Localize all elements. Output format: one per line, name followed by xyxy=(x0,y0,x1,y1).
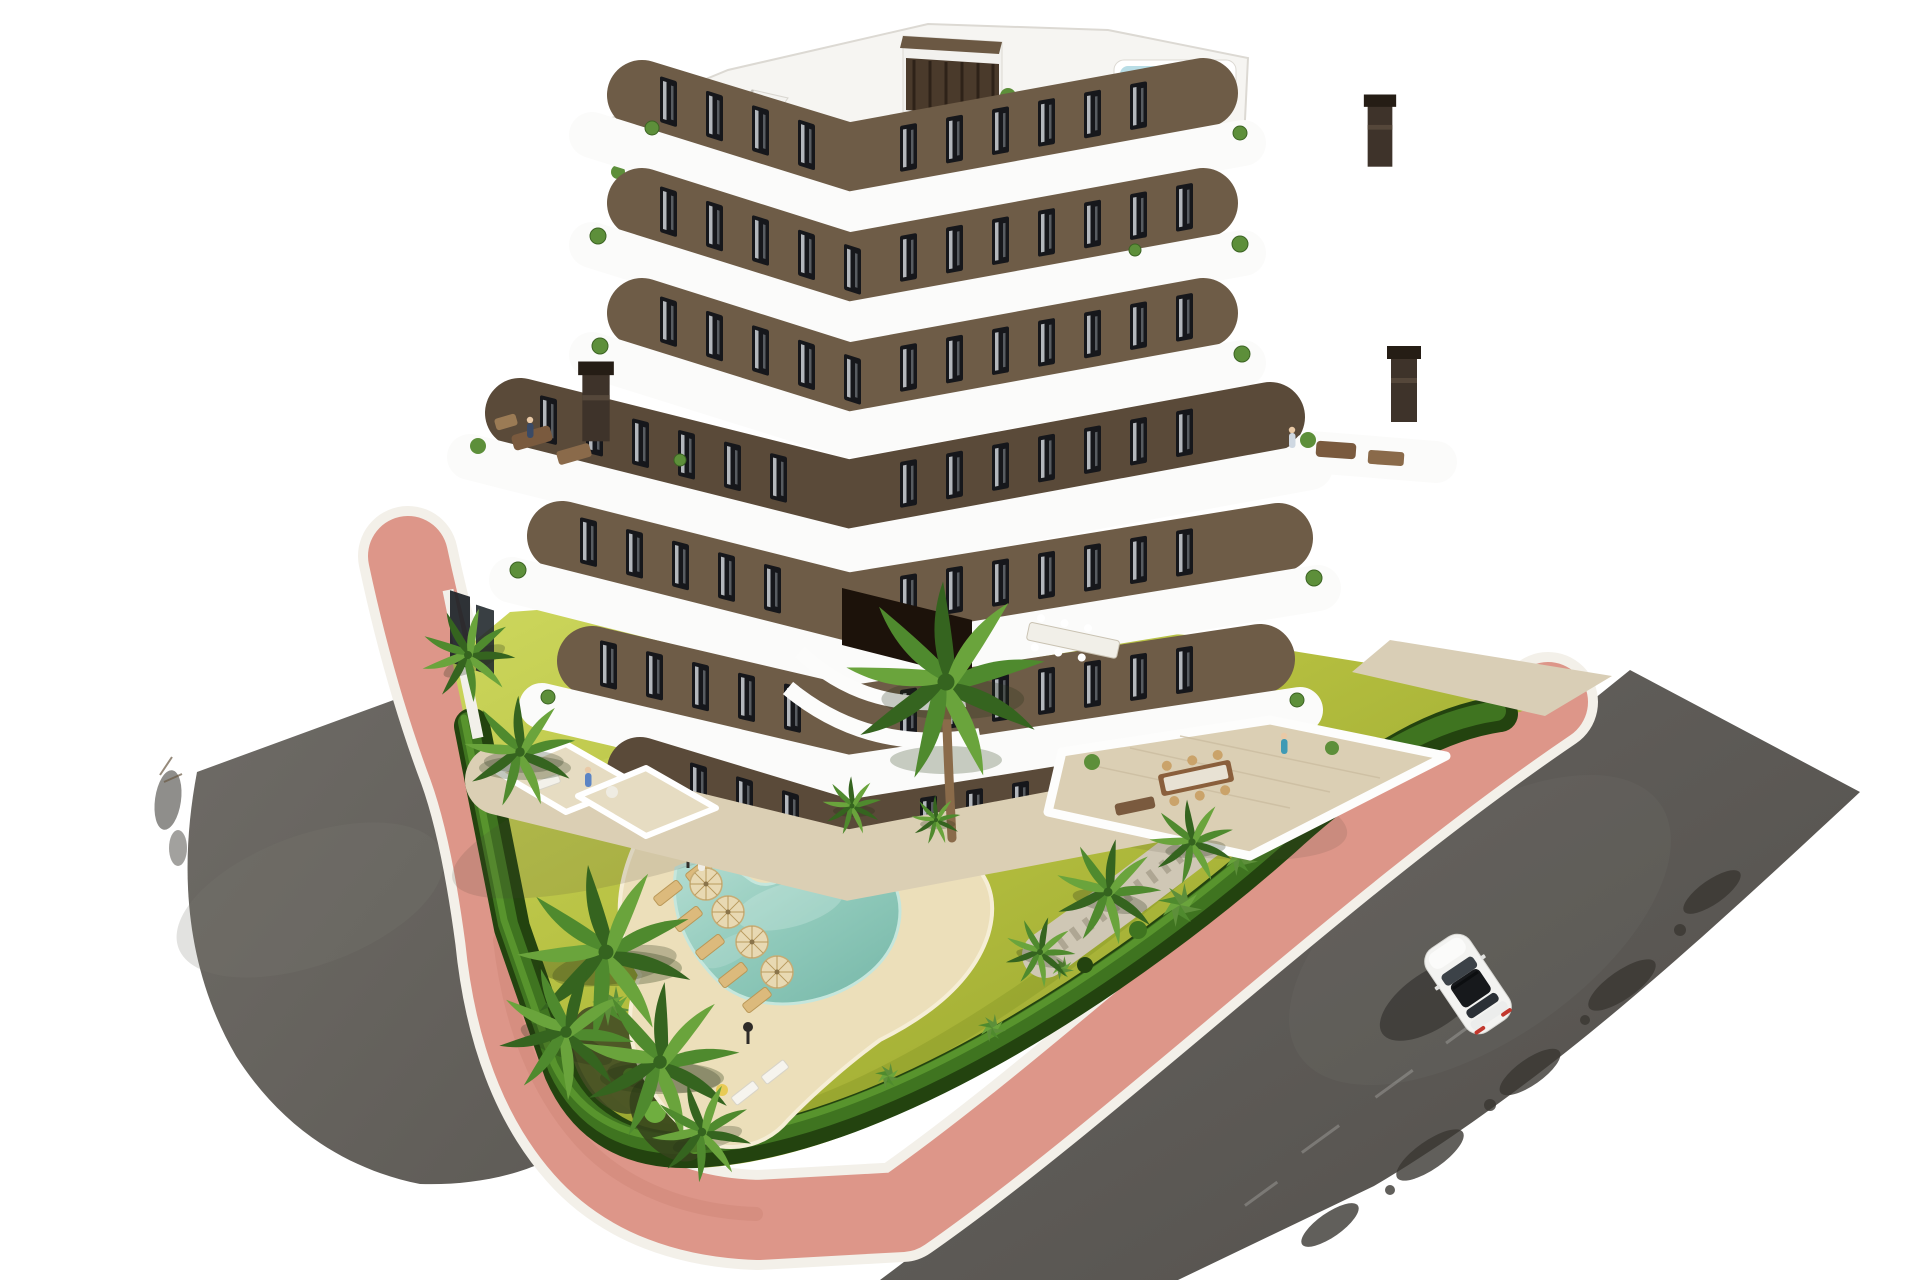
chimney xyxy=(1364,95,1396,167)
chimney xyxy=(578,362,614,442)
chimney xyxy=(1387,346,1421,422)
architectural-render xyxy=(0,0,1920,1280)
person xyxy=(585,767,592,787)
person xyxy=(1289,427,1296,448)
person xyxy=(1281,733,1288,754)
render-canvas xyxy=(0,0,1920,1280)
person xyxy=(527,417,534,438)
